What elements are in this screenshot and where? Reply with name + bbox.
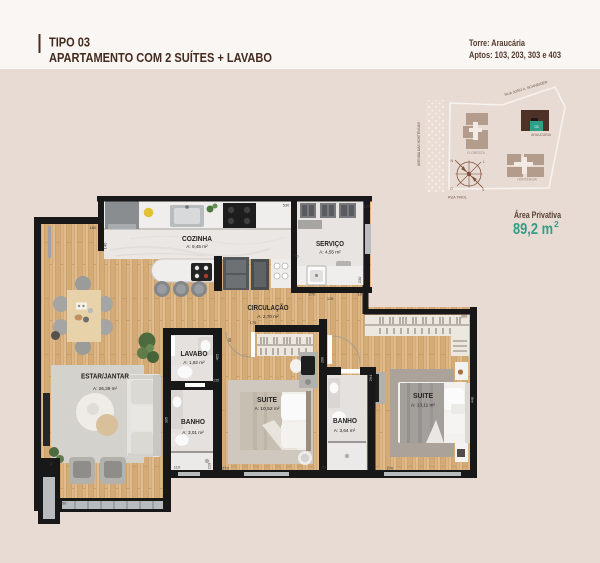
- svg-text:AVENIDA DAS HORTÊNSIAS: AVENIDA DAS HORTÊNSIAS: [416, 121, 421, 166]
- svg-text:20: 20: [295, 255, 299, 259]
- svg-text:270: 270: [387, 466, 394, 471]
- svg-text:2: 2: [554, 219, 559, 229]
- svg-text:ESTAR/JANTAR: ESTAR/JANTAR: [81, 374, 129, 381]
- svg-text:305: 305: [165, 417, 169, 423]
- svg-text:A: 13,11 m²: A: 13,11 m²: [411, 403, 435, 409]
- svg-text:A: 10,52 m²: A: 10,52 m²: [255, 406, 280, 412]
- svg-text:266: 266: [321, 357, 325, 363]
- svg-text:Aptos: 103, 203, 303 e 403: Aptos: 103, 203, 303 e 403: [469, 50, 561, 60]
- svg-text:110: 110: [174, 465, 181, 470]
- svg-text:SUITE: SUITE: [257, 397, 277, 404]
- svg-text:L: L: [483, 160, 485, 164]
- svg-text:COZINHA: COZINHA: [182, 236, 212, 243]
- svg-text:O: O: [450, 187, 453, 191]
- svg-text:175: 175: [250, 320, 257, 325]
- svg-text:230: 230: [357, 276, 362, 283]
- svg-text:HORTÊNSIA: HORTÊNSIA: [517, 177, 537, 182]
- svg-text:264: 264: [368, 374, 373, 381]
- svg-text:A: 3,64 m²: A: 3,64 m²: [334, 428, 356, 434]
- svg-text:FLORESTA: FLORESTA: [467, 151, 485, 155]
- svg-text:SUITE: SUITE: [413, 393, 433, 400]
- svg-text:BANHO: BANHO: [333, 418, 358, 425]
- svg-text:LAVABO: LAVABO: [181, 351, 209, 358]
- svg-text:A: 2,70 m²: A: 2,70 m²: [257, 314, 279, 320]
- svg-text:CIRCULAÇÃO: CIRCULAÇÃO: [248, 303, 289, 312]
- svg-text:A: 1,82 m²: A: 1,82 m²: [183, 360, 205, 366]
- svg-text:TIPO 03: TIPO 03: [49, 35, 90, 50]
- svg-text:190: 190: [363, 204, 370, 209]
- svg-text:ARAUCÁRIA: ARAUCÁRIA: [531, 133, 552, 137]
- svg-text:A: 9,45 m²: A: 9,45 m²: [186, 244, 208, 250]
- svg-text:270: 270: [222, 466, 229, 471]
- svg-text:300: 300: [461, 314, 468, 319]
- svg-text:N: N: [451, 159, 454, 163]
- svg-text:65: 65: [322, 466, 326, 470]
- svg-text:125: 125: [327, 297, 333, 301]
- svg-text:270: 270: [309, 292, 316, 297]
- svg-text:A: 4,55 m²: A: 4,55 m²: [319, 250, 341, 256]
- svg-text:SERVIÇO: SERVIÇO: [316, 241, 344, 248]
- svg-text:Torre: Araucária: Torre: Araucária: [469, 38, 526, 48]
- svg-text:530: 530: [283, 203, 290, 208]
- svg-text:RUA TIROL: RUA TIROL: [448, 196, 467, 200]
- svg-text:105: 105: [358, 292, 365, 297]
- svg-text:89,2 m: 89,2 m: [513, 221, 553, 238]
- svg-text:BANHO: BANHO: [181, 419, 206, 426]
- svg-text:135: 135: [213, 379, 219, 383]
- svg-text:A: 3,01 m²: A: 3,01 m²: [182, 430, 204, 436]
- svg-text:219: 219: [207, 462, 212, 469]
- svg-text:140: 140: [103, 242, 108, 249]
- svg-text:40: 40: [49, 461, 54, 466]
- svg-text:250: 250: [60, 501, 67, 506]
- svg-text:160: 160: [90, 225, 97, 230]
- svg-text:455: 455: [215, 353, 220, 360]
- svg-text:APARTAMENTO COM 2 SUÍTES + LAV: APARTAMENTO COM 2 SUÍTES + LAVABO: [49, 50, 272, 65]
- svg-text:448: 448: [471, 397, 475, 403]
- svg-text:03: 03: [535, 125, 539, 129]
- svg-text:89: 89: [228, 338, 232, 342]
- svg-text:A: 26,39 m²: A: 26,39 m²: [93, 386, 117, 392]
